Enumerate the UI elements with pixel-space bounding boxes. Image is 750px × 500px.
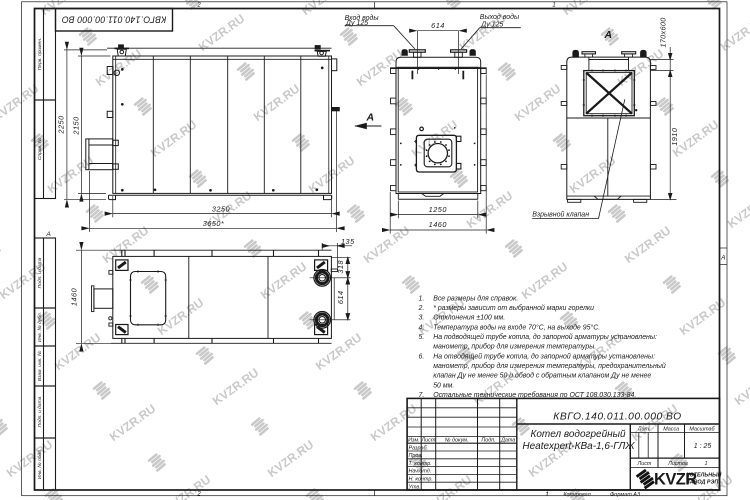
svg-text:Котел водогрейный: Котел водогрейный	[530, 429, 626, 440]
svg-text:КВГО.140.011.00.000 ВО: КВГО.140.011.00.000 ВО	[553, 411, 681, 422]
svg-text:Отклонения ±100 мм.: Отклонения ±100 мм.	[433, 315, 505, 322]
svg-text:КВГО.140.011.00.000 ВО: КВГО.140.011.00.000 ВО	[62, 15, 167, 25]
svg-text:2.: 2.	[418, 305, 425, 312]
svg-text:2250: 2250	[57, 115, 66, 134]
svg-text:1460: 1460	[429, 220, 447, 229]
svg-text:318: 318	[336, 260, 345, 274]
svg-text:1.: 1.	[419, 295, 425, 302]
svg-text:Подп. и дата: Подп. и дата	[37, 396, 43, 427]
svg-text:А: А	[366, 112, 375, 124]
svg-text:6.: 6.	[419, 353, 425, 360]
svg-text:Инв. № подл.: Инв. № подл.	[37, 449, 43, 479]
svg-text:А: А	[46, 231, 51, 238]
svg-text:170х600: 170х600	[658, 17, 667, 47]
svg-text:1910: 1910	[670, 128, 679, 146]
svg-text:Разраб.: Разраб.	[409, 445, 429, 451]
svg-text:1460: 1460	[69, 288, 78, 306]
svg-text:Подп.: Подп.	[481, 438, 495, 444]
svg-text:Инв. № дубл.: Инв. № дубл.	[37, 312, 43, 342]
svg-text:На подводящей трубе котла, до: На подводящей трубе котла, до запорной а…	[433, 333, 657, 341]
svg-text:Heatexpert-КВа-1,6-ГЛЖ: Heatexpert-КВа-1,6-ГЛЖ	[522, 441, 635, 452]
svg-text:3250: 3250	[212, 204, 230, 213]
svg-text:Взрывной клапан: Взрывной клапан	[532, 211, 589, 219]
svg-text:Выход воды: Выход воды	[480, 13, 520, 21]
svg-text:№ докум.: № докум.	[445, 438, 469, 444]
svg-text:Формат А3: Формат А3	[610, 492, 641, 498]
svg-text:Н. контр.: Н. контр.	[409, 477, 433, 483]
svg-text:1: 1	[545, 492, 548, 498]
svg-text:А: А	[720, 255, 725, 262]
svg-text:Температура воды на входе 70°С: Температура воды на входе 70°С, на выход…	[433, 323, 600, 331]
svg-text:Утв.: Утв.	[408, 484, 421, 490]
svg-text:манометр, прибор для измерения: манометр, прибор для измерения температу…	[433, 343, 596, 351]
svg-text:Перв. примен.: Перв. примен.	[37, 38, 43, 71]
svg-text:Нач.отд.: Нач.отд.	[409, 469, 432, 475]
svg-text:клапан Ду не менее 50 и обвод: клапан Ду не менее 50 и обвод с обратным…	[433, 372, 651, 380]
svg-text:Подп. и дата: Подп. и дата	[37, 257, 43, 288]
svg-text:Взам. инв. №: Взам. инв. №	[37, 351, 43, 381]
svg-text:Лист: Лист	[420, 438, 435, 444]
svg-text:* размеры зависит от выбранной: * размеры зависит от выбранной марки гор…	[433, 304, 594, 312]
svg-text:4.: 4.	[419, 324, 425, 331]
svg-text:Масса: Масса	[663, 427, 679, 433]
svg-text:3.: 3.	[419, 315, 425, 322]
svg-text:Дата: Дата	[500, 438, 515, 444]
svg-text:Лит.: Лит.	[637, 427, 651, 433]
svg-text:1: 1	[552, 3, 555, 9]
svg-text:КОТЕЛЬНЫЙ: КОТЕЛЬНЫЙ	[686, 471, 721, 479]
svg-text:манометр, прибор для измерения: манометр, прибор для измерения температу…	[433, 362, 666, 370]
svg-text:614: 614	[336, 290, 345, 304]
svg-text:135: 135	[341, 237, 355, 246]
svg-text:Масштаб: Масштаб	[689, 427, 715, 433]
svg-text:1 : 25: 1 : 25	[694, 443, 712, 450]
svg-text:3650*: 3650*	[203, 219, 225, 228]
svg-text:2: 2	[196, 491, 201, 497]
svg-text:2150: 2150	[71, 116, 80, 135]
svg-text:Копировал: Копировал	[563, 492, 590, 498]
svg-text:50 мм.: 50 мм.	[433, 382, 454, 389]
svg-text:Справ. №: Справ. №	[37, 138, 43, 160]
svg-text:Листов: Листов	[667, 461, 688, 467]
svg-text:Лист: Лист	[637, 461, 652, 467]
svg-text:1250: 1250	[429, 205, 447, 214]
svg-text:5.: 5.	[419, 334, 425, 341]
svg-text:ЗАВОД РЭП: ЗАВОД РЭП	[686, 480, 718, 486]
svg-text:1: 1	[705, 461, 708, 467]
svg-text:А: А	[604, 29, 613, 41]
svg-text:2: 2	[196, 3, 201, 9]
svg-text:Т. контр.: Т. контр.	[409, 461, 432, 467]
svg-text:614: 614	[431, 21, 445, 30]
svg-text:Изм.: Изм.	[408, 438, 420, 444]
svg-text:На отводящей трубе котла, до з: На отводящей трубе котла, до запорной ар…	[433, 352, 655, 360]
svg-text:Все размеры для справок.: Все размеры для справок.	[433, 294, 518, 302]
svg-text:Пров.: Пров.	[409, 453, 423, 459]
